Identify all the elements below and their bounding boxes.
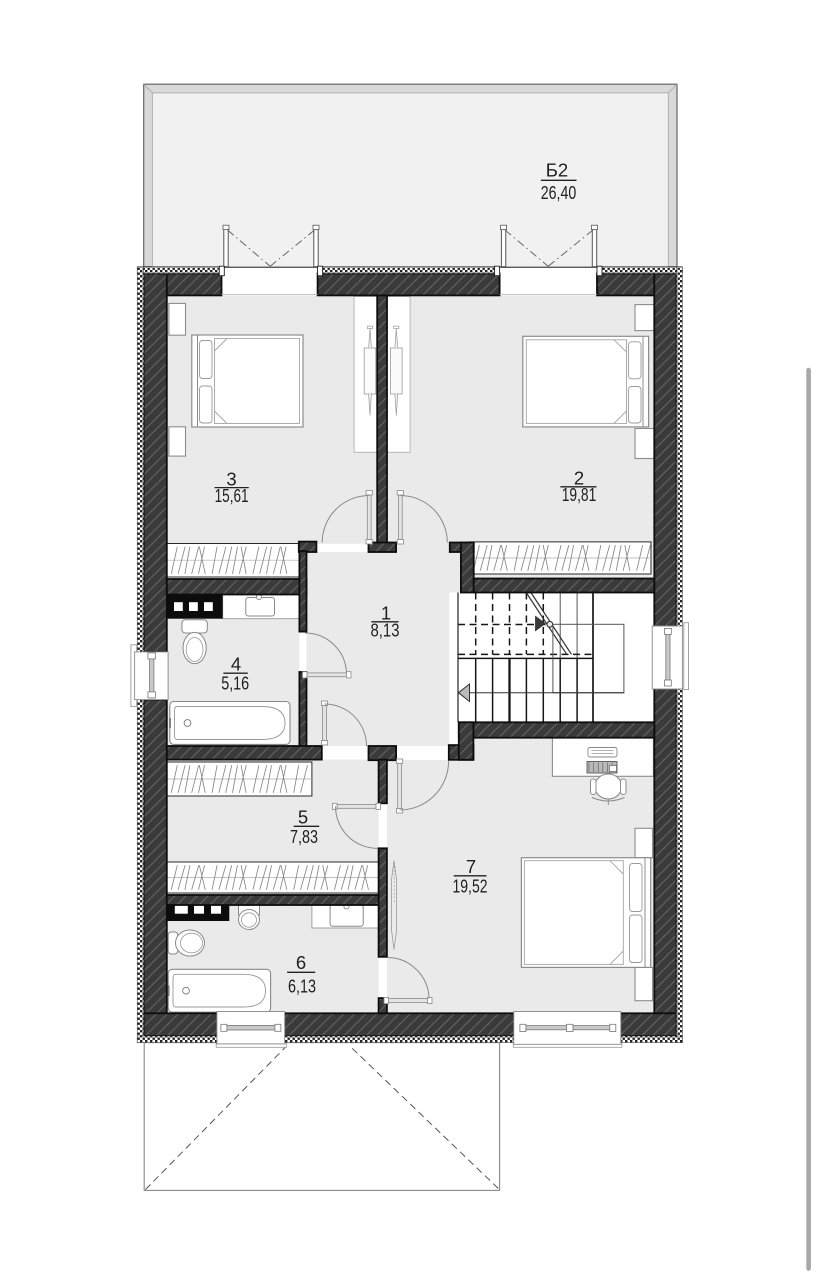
svg-text:7: 7 — [466, 856, 476, 877]
svg-text:6,13: 6,13 — [288, 976, 316, 997]
svg-text:26,40: 26,40 — [541, 182, 577, 203]
svg-text:8,13: 8,13 — [371, 620, 400, 641]
svg-text:19,52: 19,52 — [453, 876, 488, 897]
svg-text:Б2: Б2 — [546, 160, 568, 181]
svg-text:15,61: 15,61 — [215, 485, 249, 506]
svg-text:7,83: 7,83 — [290, 826, 318, 847]
svg-text:5,16: 5,16 — [221, 673, 249, 694]
svg-text:6: 6 — [296, 952, 306, 973]
svg-text:5: 5 — [298, 807, 308, 828]
svg-text:19,81: 19,81 — [562, 484, 597, 505]
svg-text:4: 4 — [231, 654, 241, 675]
